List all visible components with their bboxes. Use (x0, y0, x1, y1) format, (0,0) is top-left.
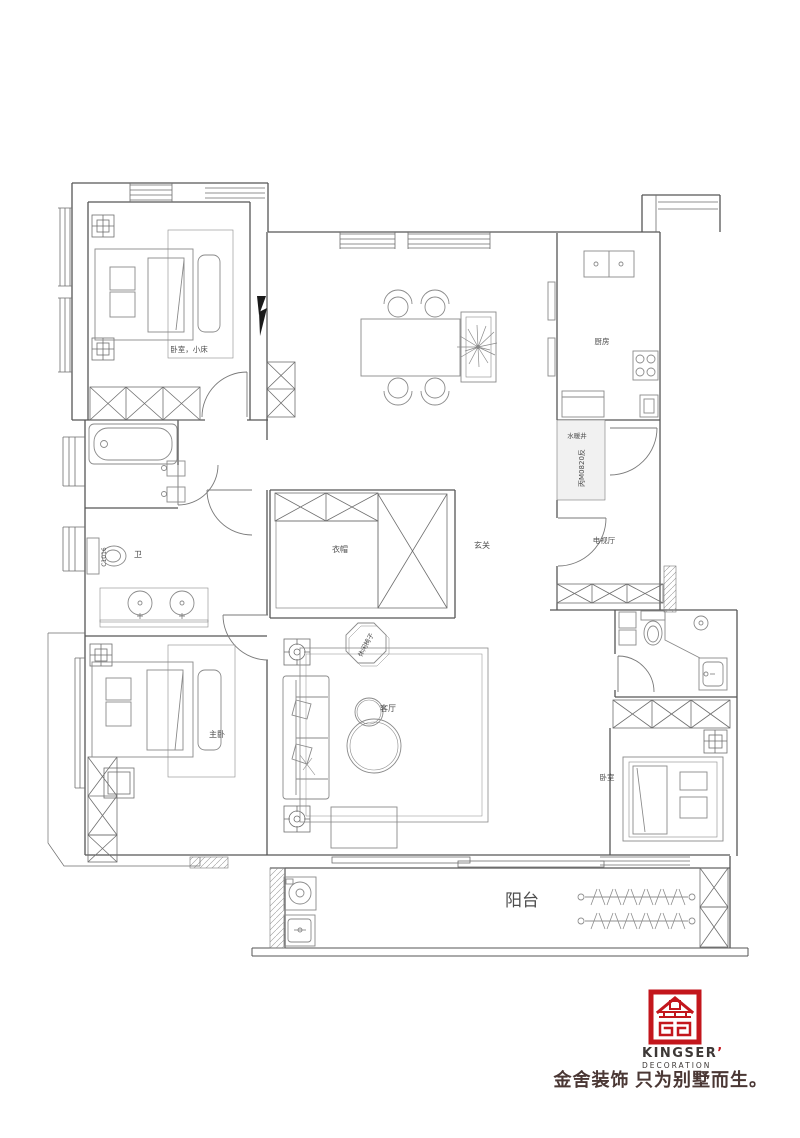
label-kitchen: 厨房 (595, 336, 610, 346)
column-symbol (704, 730, 727, 753)
cloakroom-cabinets (275, 493, 447, 608)
door-bath-inner (178, 465, 218, 505)
windows (48, 183, 718, 867)
column-symbol (92, 215, 114, 237)
plant-symbol (457, 312, 497, 382)
column-symbol (90, 644, 112, 666)
furniture (87, 230, 727, 946)
hatched-wall-blocks (190, 420, 676, 948)
dining-table (361, 290, 460, 405)
door-master-bedroom (223, 615, 268, 660)
kitchen-sink (584, 251, 634, 277)
floor-plan-page: 卧室，小床 衣帽 玄关 厨房 水暖井 丙M0820反 电视厅 卫 C1016 主… (0, 0, 800, 1138)
wardrobe-bedroom2 (613, 700, 730, 728)
balcony-left-wall (270, 868, 285, 948)
kingser-logo: KINGSER’ DECORATION (642, 989, 708, 1070)
label-cloakroom: 衣帽 (332, 544, 348, 554)
kitchen-glass-wall (548, 282, 555, 376)
door-child-bedroom (202, 372, 247, 417)
bed-master (92, 645, 235, 777)
kitchen-corner-unit (640, 395, 658, 417)
column-symbol (92, 338, 114, 360)
door-bath2 (618, 656, 654, 692)
label-entry: 玄关 (474, 540, 490, 550)
bay-window-outline (48, 633, 200, 866)
living-room-rug (300, 648, 488, 822)
hall-closet (557, 584, 663, 603)
bed-child (95, 230, 233, 358)
label-entry-door-code: 丙M0820反 (577, 449, 586, 487)
entry-shoe-cabinet (267, 362, 295, 417)
washbasin-2 (699, 658, 727, 690)
label-living-room: 客厅 (380, 703, 396, 713)
wardrobe-master (88, 757, 134, 862)
shower (665, 610, 708, 658)
closet-child (90, 387, 200, 420)
sliding-door-panel (332, 857, 470, 863)
label-tv-hall: 电视厅 (593, 535, 616, 545)
brand-tagline: 金舍装饰 只为别墅而生。 (554, 1066, 769, 1092)
kingser-logo-icon (648, 989, 702, 1045)
door-main-entry (610, 428, 657, 475)
drying-racks (578, 889, 695, 929)
fridge (562, 391, 604, 417)
sliding-door-panel (458, 861, 604, 867)
label-bedroom2: 卧室 (600, 772, 615, 782)
bathtub (89, 424, 177, 464)
washing-machine (284, 877, 316, 910)
flue-duct (664, 566, 676, 612)
label-balcony: 阳台 (505, 891, 539, 911)
door-bath-corridor (207, 490, 252, 535)
brand-mark: ’ (717, 1046, 723, 1061)
bed-bedroom2 (623, 757, 723, 841)
label-shaft: 水暖井 (567, 431, 587, 440)
balcony-sink (284, 915, 315, 946)
walls (72, 183, 748, 956)
double-vanity (100, 588, 208, 627)
balcony-column (700, 868, 728, 947)
wall-fixtures (162, 461, 186, 502)
brand-name: KINGSER’ (642, 1047, 708, 1061)
floor-plan-drawing: 卧室，小床 衣帽 玄关 厨房 水暖井 丙M0820反 电视厅 卫 C1016 主… (0, 0, 800, 1138)
toilet-2 (641, 611, 665, 645)
label-bedroom-child: 卧室，小床 (170, 344, 208, 354)
label-window-code: C1016 (101, 547, 108, 567)
bath2-cabinet (619, 612, 636, 645)
label-bath: 卫 (134, 550, 142, 559)
label-master-bedroom: 主卧 (209, 729, 225, 739)
tv-cabinet (331, 807, 397, 848)
electric-panel-icon (257, 296, 267, 336)
stove (633, 351, 658, 380)
